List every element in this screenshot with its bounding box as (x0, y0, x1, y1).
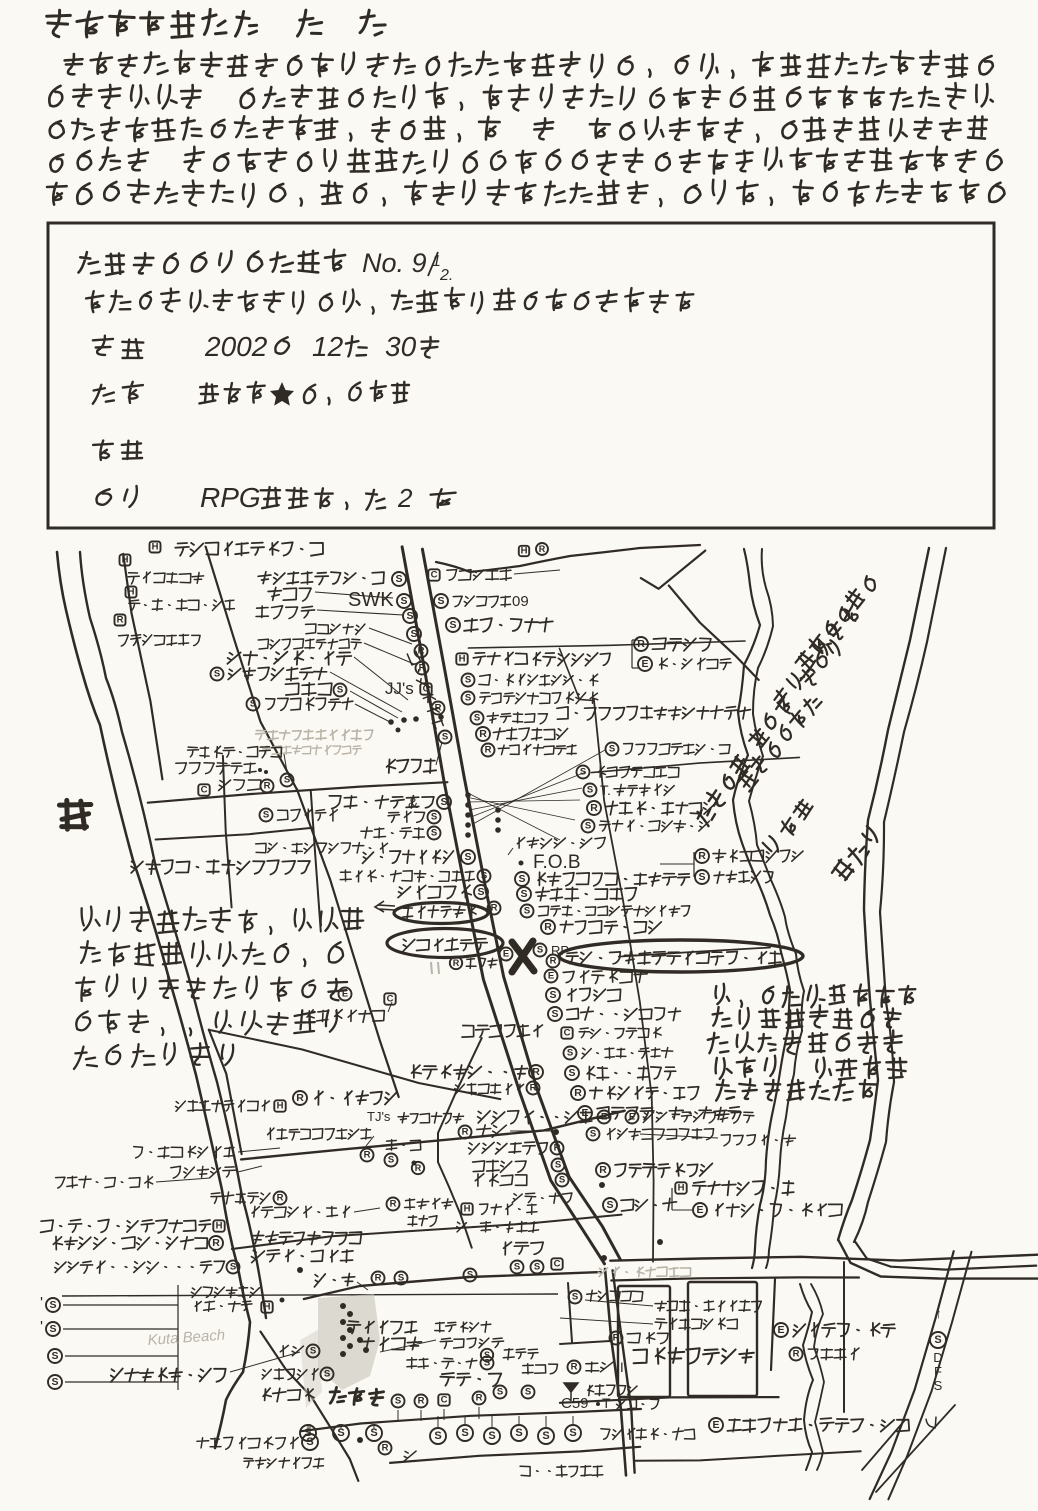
svg-text:S: S (440, 796, 447, 808)
svg-text:SWK: SWK (348, 589, 394, 611)
svg-text:R: R (117, 615, 124, 626)
svg-text:S: S (51, 1350, 58, 1362)
svg-text:S: S (250, 699, 256, 710)
svg-text:R: R (375, 1273, 382, 1284)
svg-text:R: R (532, 1066, 540, 1078)
svg-text:H: H (459, 654, 466, 665)
svg-text:S: S (515, 1427, 522, 1439)
svg-text:S: S (484, 1350, 490, 1360)
svg-text:S: S (474, 713, 480, 724)
svg-text:12: 12 (312, 331, 344, 362)
svg-text:S: S (49, 1299, 56, 1311)
svg-text:H: H (128, 587, 135, 598)
svg-text:S: S (395, 1396, 401, 1407)
svg-text:S: S (934, 1378, 943, 1393)
svg-text:R: R (491, 903, 498, 914)
svg-text:S: S (551, 1008, 558, 1020)
svg-text:R: R (637, 638, 645, 650)
svg-text:R: R (277, 1193, 284, 1204)
svg-text:C: C (441, 1395, 448, 1406)
svg-text:S: S (497, 1387, 503, 1398)
svg-text:S: S (395, 573, 402, 585)
svg-text:F: F (934, 1364, 942, 1379)
svg-text:R: R (613, 1333, 620, 1344)
svg-text:S: S (549, 989, 556, 1001)
svg-text:S: S (465, 675, 471, 686)
svg-text:S: S (585, 821, 591, 832)
svg-text:': ' (40, 1319, 43, 1336)
svg-text:H: H (264, 1302, 271, 1313)
svg-text:E: E (712, 1419, 719, 1431)
svg-text:S: S (934, 1334, 941, 1346)
svg-text:S: S (49, 1323, 56, 1335)
svg-text:E: E (629, 1112, 635, 1123)
svg-text:2.: 2. (439, 267, 453, 284)
svg-text:R: R (544, 921, 552, 933)
svg-text:S: S (569, 1427, 576, 1439)
svg-text:R: R (599, 1164, 607, 1176)
svg-text:R: R (419, 663, 426, 674)
svg-text:II: II (616, 1359, 624, 1375)
svg-text:S: S (442, 732, 448, 743)
svg-text:09: 09 (512, 593, 529, 610)
svg-text:S: S (406, 610, 413, 622)
svg-text:S: S (434, 1430, 441, 1442)
svg-text:S: S (567, 1048, 573, 1059)
svg-text:E: E (503, 949, 509, 960)
svg-text:C: C (564, 1028, 571, 1039)
svg-text:S: S (524, 906, 530, 917)
svg-text:S: S (559, 1175, 565, 1186)
svg-text:30: 30 (385, 331, 417, 362)
svg-text:R: R (364, 1150, 371, 1161)
svg-text:S: S (542, 1430, 549, 1442)
svg-text:H: H (277, 1101, 284, 1112)
svg-text:S: S (590, 1129, 596, 1140)
svg-text:E: E (601, 1112, 607, 1123)
svg-text:S: S (534, 1262, 540, 1273)
svg-text:S: S (449, 619, 456, 631)
svg-text:S: S (587, 785, 593, 796)
svg-text:S: S (525, 1387, 531, 1398)
svg-text:R: R (462, 1127, 469, 1138)
svg-text:R: R (698, 850, 706, 862)
svg-text:S: S (306, 1436, 313, 1448)
svg-text:R: R (574, 1087, 582, 1099)
svg-text:S: S (51, 1376, 58, 1388)
svg-text:F.O.B: F.O.B (533, 852, 581, 873)
svg-text:E: E (777, 1324, 784, 1336)
svg-text:S: S (337, 685, 343, 696)
svg-text:S: S (520, 888, 527, 900)
svg-text:C: C (201, 785, 208, 796)
svg-text:R: R (476, 1393, 483, 1404)
svg-text:TJ's: TJ's (367, 1109, 391, 1124)
svg-text:S: S (467, 1270, 473, 1281)
svg-text:2002: 2002 (204, 331, 268, 362)
svg-text:T.: T. (600, 782, 611, 798)
svg-text:S: S (410, 628, 417, 640)
svg-text:S: S (388, 1155, 394, 1166)
svg-text:R: R (453, 958, 460, 968)
svg-text:C59: C59 (561, 1395, 589, 1412)
svg-text:R: R (415, 1163, 422, 1173)
svg-text:C: C (431, 570, 438, 581)
svg-text:R: R (418, 1396, 425, 1407)
svg-text:E: E (696, 1204, 703, 1216)
svg-text:R: R (590, 802, 598, 814)
svg-text:R: R (435, 703, 442, 714)
svg-text:S: S (431, 828, 437, 839)
svg-text:JJ's: JJ's (385, 679, 414, 698)
svg-text:S: S (609, 744, 615, 755)
svg-text:R: R (479, 728, 487, 740)
svg-text:R: R (296, 1092, 304, 1104)
svg-text:R: R (212, 1237, 220, 1249)
svg-text:R: R (485, 745, 492, 756)
svg-text:S: S (464, 851, 471, 863)
svg-text:C: C (387, 994, 394, 1005)
svg-text:C: C (554, 1259, 561, 1270)
svg-text:H: H (678, 1183, 685, 1194)
svg-text:R: R (539, 544, 546, 554)
svg-text:R: R (793, 1349, 800, 1360)
svg-text:S: S (481, 871, 487, 882)
svg-text:C: C (423, 684, 430, 695)
svg-text:E: E (641, 658, 648, 670)
svg-text:S: S (465, 693, 471, 704)
svg-text:S: S (698, 871, 705, 883)
svg-text:2: 2 (397, 483, 413, 513)
svg-text:S: S (555, 1160, 561, 1171)
svg-text:': ' (40, 1295, 43, 1312)
svg-text:R: R (550, 956, 557, 967)
svg-text:S: S (514, 1262, 520, 1273)
svg-text:S: S (230, 1262, 236, 1273)
svg-text:S: S (437, 595, 444, 607)
svg-text:H: H (464, 1204, 471, 1215)
svg-text:R: R (554, 1143, 561, 1154)
svg-text:R: R (390, 1199, 397, 1210)
svg-text:S: S (324, 1369, 330, 1380)
svg-text:D: D (933, 1350, 942, 1365)
svg-text:↑: ↑ (935, 1305, 942, 1321)
svg-text:S: S (477, 886, 484, 898)
svg-text:&: & (408, 795, 418, 812)
svg-text:H: H (122, 555, 129, 566)
svg-text:S: S (461, 1427, 468, 1439)
svg-text:H: H (152, 542, 159, 553)
svg-text:S: S (488, 1430, 495, 1442)
svg-text:E: E (548, 971, 554, 982)
svg-text:T: T (602, 1395, 611, 1411)
svg-text:S: S (537, 945, 543, 956)
svg-text:S: S (284, 775, 290, 786)
svg-text:S: S (310, 1346, 316, 1357)
svg-text:S: S (400, 595, 407, 607)
svg-text:R: R (530, 1083, 537, 1094)
svg-text:S: S (572, 1292, 578, 1303)
svg-text:R: R (571, 1362, 578, 1373)
svg-text:H: H (521, 546, 528, 557)
svg-text:S: S (214, 669, 220, 680)
svg-text:No. 9: No. 9 (362, 248, 427, 278)
svg-text:S: S (263, 810, 269, 821)
svg-text:S: S (431, 812, 437, 823)
svg-text:S: S (606, 1199, 613, 1211)
svg-text:R: R (382, 1443, 389, 1454)
svg-text:S: S (398, 1273, 404, 1284)
svg-text:R: R (264, 781, 271, 792)
svg-text:RPG: RPG (200, 482, 261, 513)
svg-text:R: R (418, 646, 425, 657)
svg-text:S: S (518, 873, 525, 885)
svg-text:S: S (568, 1067, 575, 1079)
svg-text:H: H (216, 1221, 223, 1232)
